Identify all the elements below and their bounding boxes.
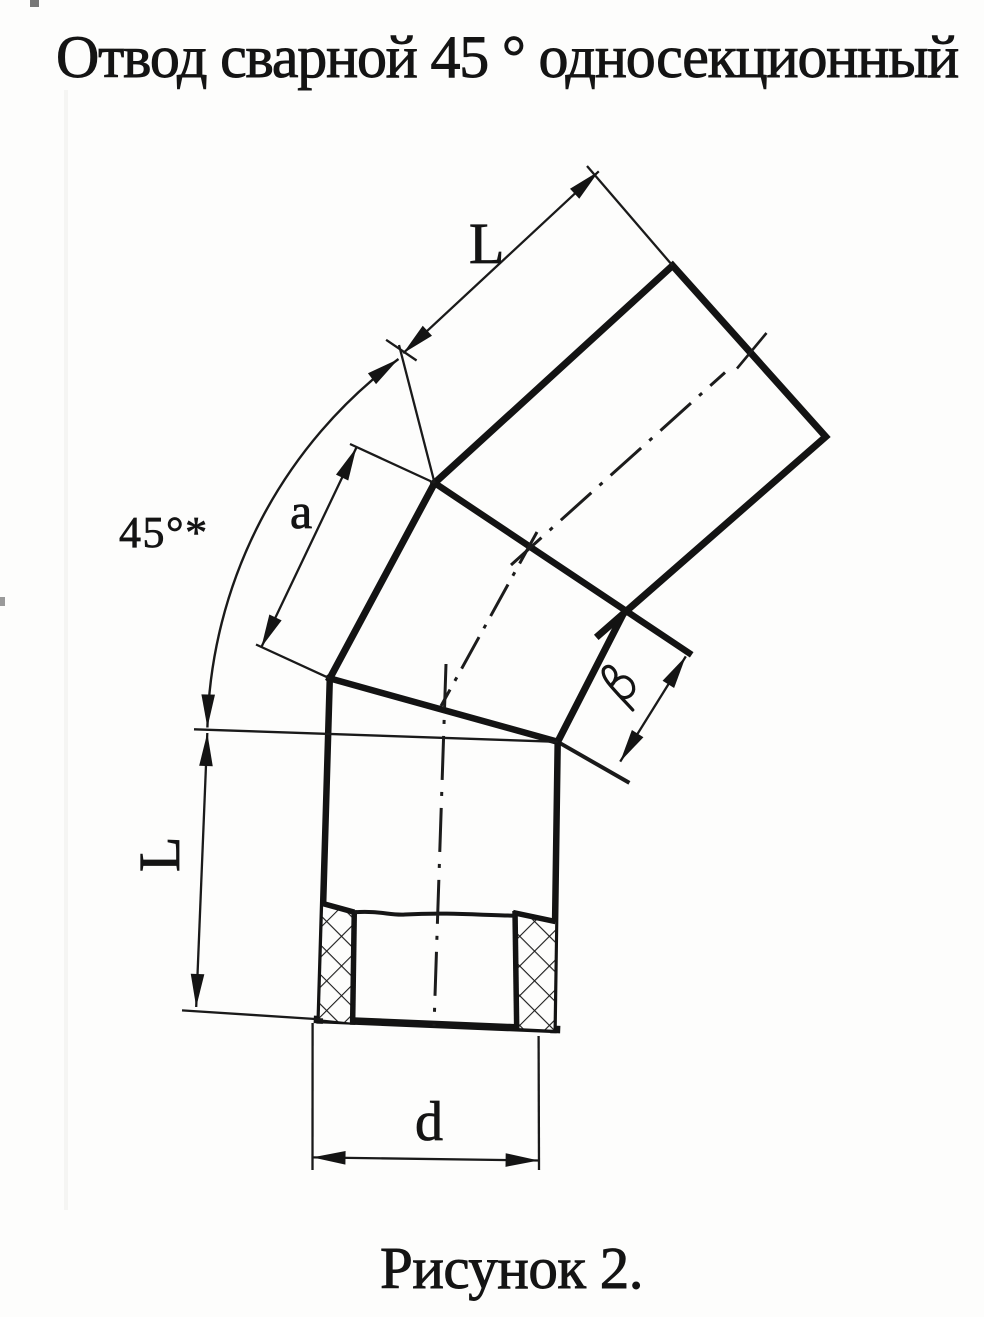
svg-text:Отвод сварной 45 ° односекцион: Отвод сварной 45 ° односекционный <box>56 24 958 90</box>
svg-text:d: d <box>415 1091 443 1153</box>
svg-text:Рисунок 2.: Рисунок 2. <box>380 1235 643 1301</box>
svg-text:L: L <box>127 837 192 872</box>
svg-text:a: a <box>290 483 312 539</box>
svg-text:45°*: 45°* <box>119 508 209 557</box>
svg-text:L: L <box>469 211 504 276</box>
